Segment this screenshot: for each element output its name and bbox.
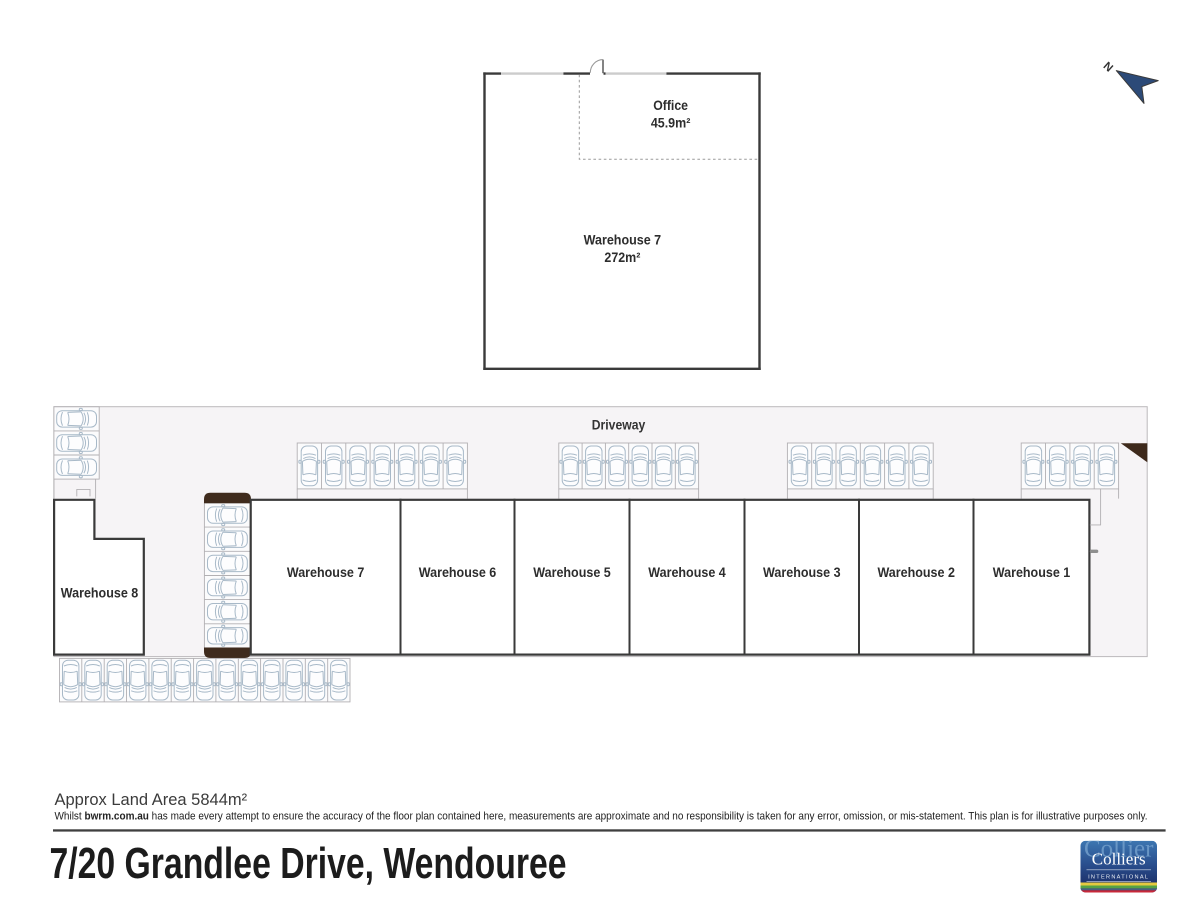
svg-text:INTERNATIONAL: INTERNATIONAL [1088, 875, 1149, 881]
svg-text:Office: Office [653, 98, 688, 113]
svg-text:7/20 Grandlee Drive, Wendouree: 7/20 Grandlee Drive, Wendouree [50, 839, 567, 888]
svg-text:Warehouse 7: Warehouse 7 [584, 233, 662, 248]
svg-text:Warehouse 4: Warehouse 4 [648, 565, 726, 580]
svg-text:Warehouse 5: Warehouse 5 [533, 565, 611, 580]
svg-text:Warehouse 7: Warehouse 7 [287, 565, 365, 580]
svg-text:Warehouse 3: Warehouse 3 [763, 565, 841, 580]
svg-text:Approx Land Area 5844m²: Approx Land Area 5844m² [55, 791, 248, 809]
svg-text:Whilst bwrm.com.au has made ev: Whilst bwrm.com.au has made every attemp… [55, 810, 1148, 822]
svg-text:Warehouse 2: Warehouse 2 [877, 565, 955, 580]
svg-text:Colliers: Colliers [1092, 849, 1146, 868]
svg-text:Warehouse 6: Warehouse 6 [419, 565, 497, 580]
svg-text:Warehouse 8: Warehouse 8 [61, 586, 139, 601]
svg-text:Driveway: Driveway [592, 417, 646, 432]
svg-text:45.9m²: 45.9m² [651, 115, 691, 130]
svg-text:Warehouse 1: Warehouse 1 [993, 565, 1071, 580]
svg-text:272m²: 272m² [604, 250, 640, 265]
